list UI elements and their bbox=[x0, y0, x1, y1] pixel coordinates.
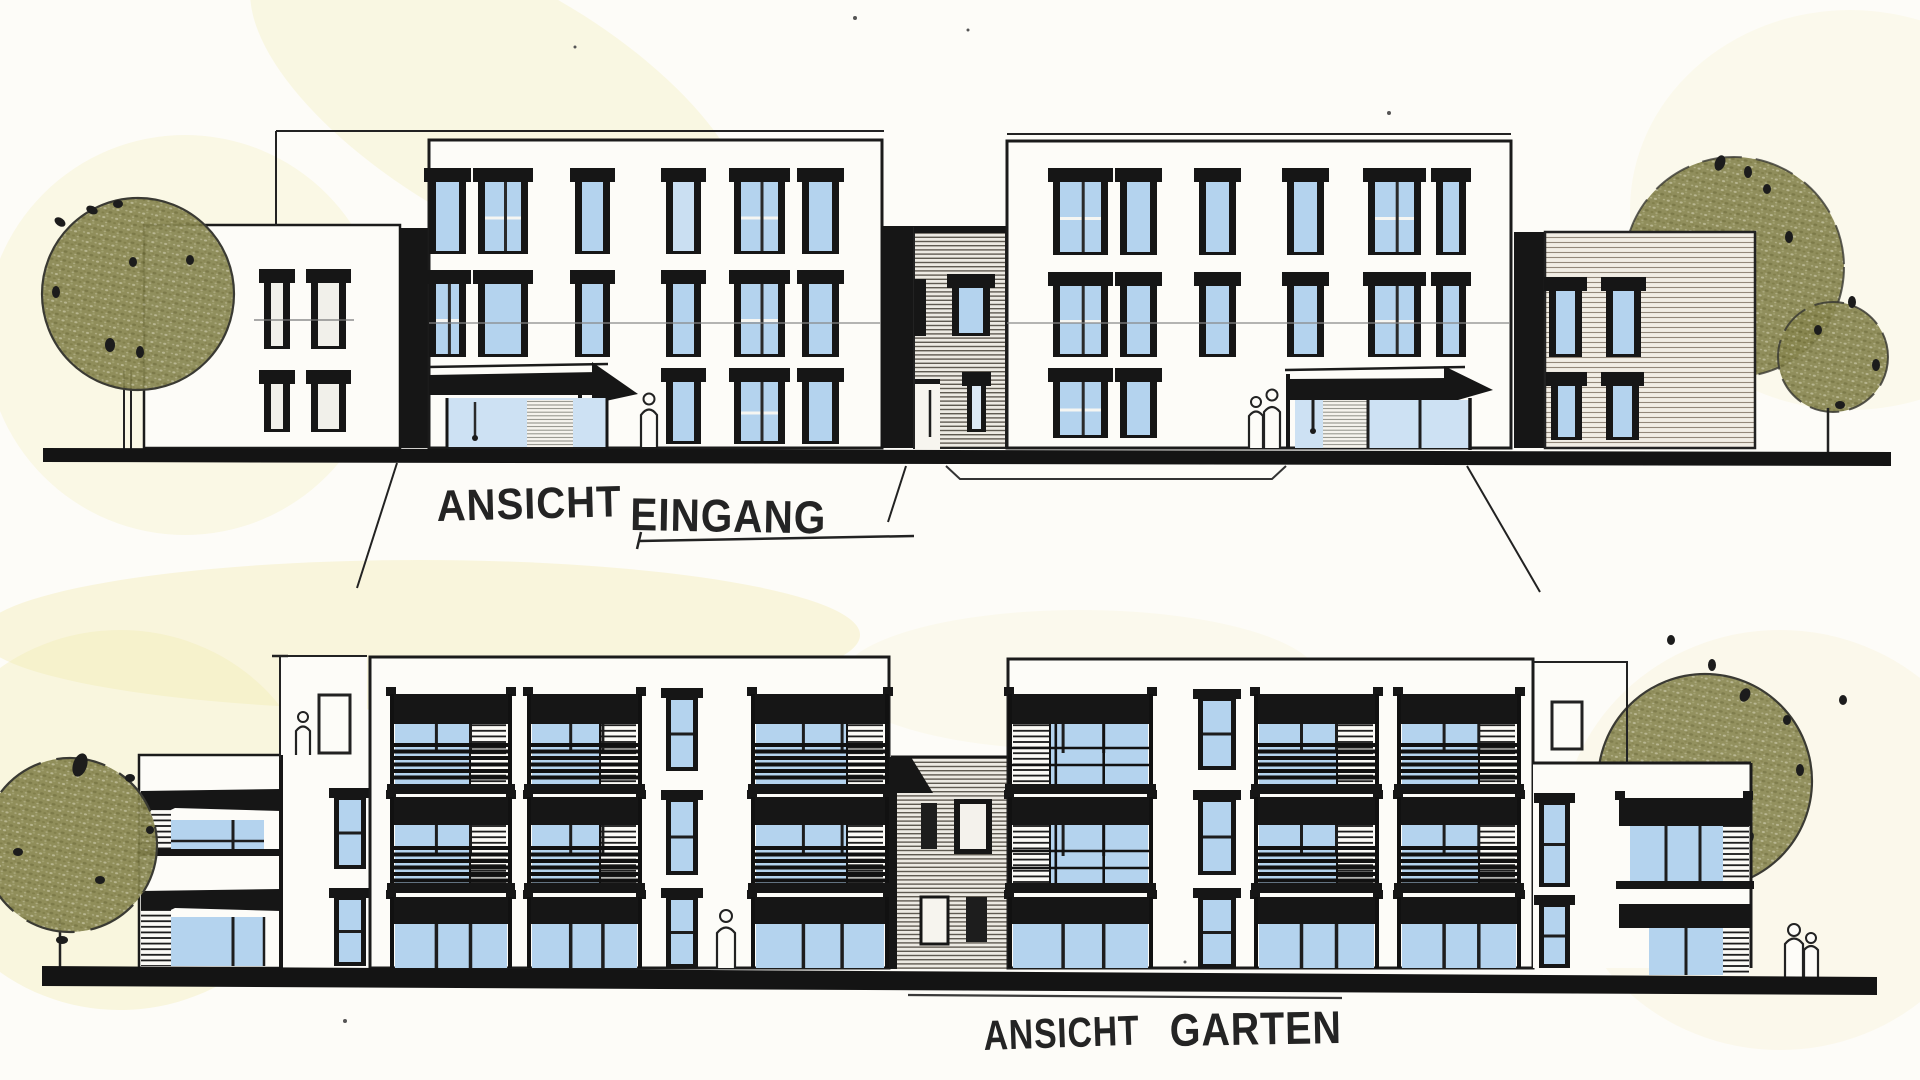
svg-text:ANSICHT: ANSICHT bbox=[436, 477, 622, 531]
svg-text:GARTEN: GARTEN bbox=[1169, 1001, 1342, 1056]
svg-text:ANSICHT: ANSICHT bbox=[983, 1007, 1141, 1059]
svg-text:EINGANG: EINGANG bbox=[630, 488, 827, 543]
